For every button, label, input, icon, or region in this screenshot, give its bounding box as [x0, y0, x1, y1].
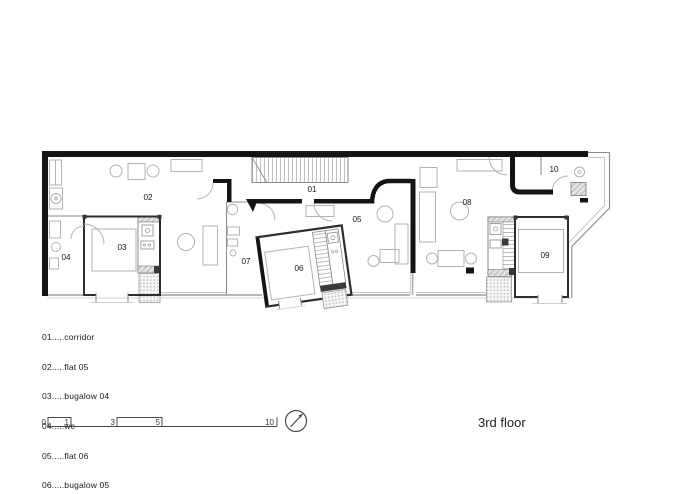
legend-item-02: 02.....flat 05 [42, 363, 109, 373]
scale-label-10: 10 [265, 418, 274, 427]
kitchen-column-03 [138, 217, 160, 303]
wc07-fixtures [227, 204, 239, 256]
room-label-03: 03 [117, 243, 127, 252]
room-label-05: 05 [352, 215, 362, 224]
floor-plan-page: 01 02 03 04 05 06 07 08 09 10 0 1 3 5 10… [0, 0, 700, 494]
legend: 01.....corridor 02.....flat 05 03.....bu… [42, 313, 109, 494]
legend-item-06: 06.....bugalow 05 [42, 481, 109, 491]
room-label-04: 04 [61, 253, 71, 262]
kitchen-column-09 [487, 217, 517, 302]
room-label-09: 09 [540, 251, 550, 260]
legend-item-01: 01.....corridor [42, 333, 109, 343]
wc10-fixtures [571, 167, 586, 196]
room-label-08: 08 [462, 198, 472, 207]
room-02-furniture [50, 160, 218, 266]
room-label-01: 01 [307, 185, 317, 194]
floor-label: 3rd floor [478, 415, 526, 430]
room-label-07: 07 [241, 257, 251, 266]
scale-label-3: 3 [111, 418, 116, 427]
stairs [252, 158, 348, 183]
room-label-06: 06 [294, 264, 304, 273]
legend-item-05: 05.....flat 06 [42, 452, 109, 462]
legend-item-04: 04.....wc [42, 422, 109, 432]
room-label-02: 02 [143, 193, 153, 202]
room-label-10: 10 [549, 165, 559, 174]
north-arrow-icon [286, 411, 307, 432]
scale-label-5: 5 [156, 418, 161, 427]
legend-item-03: 03.....bugalow 04 [42, 392, 109, 402]
room-06-bugalow [257, 225, 353, 316]
wc04-fixtures [50, 221, 61, 269]
